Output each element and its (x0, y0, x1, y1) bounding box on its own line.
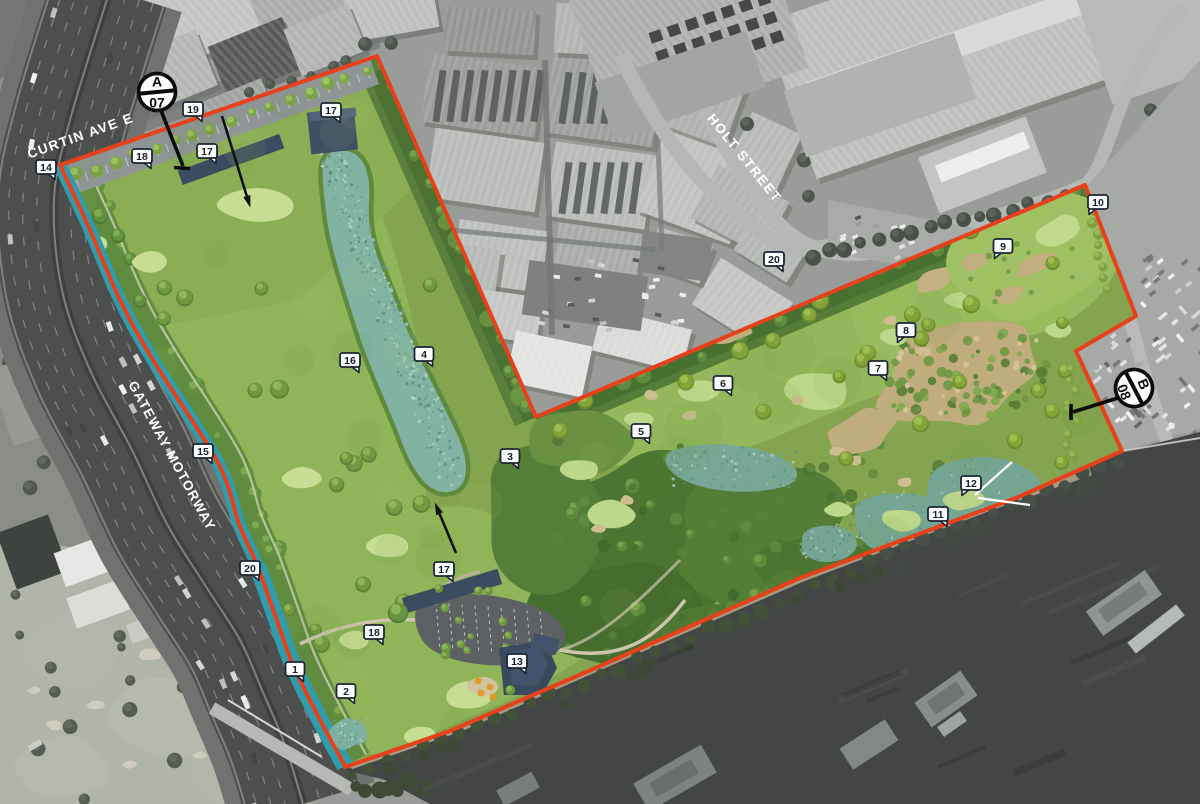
svg-text:18: 18 (136, 151, 148, 163)
svg-text:17: 17 (325, 105, 337, 117)
svg-text:17: 17 (201, 146, 213, 158)
svg-text:18: 18 (368, 627, 380, 639)
svg-text:07: 07 (149, 95, 165, 111)
svg-text:6: 6 (720, 378, 726, 390)
svg-text:20: 20 (768, 254, 780, 266)
svg-text:17: 17 (438, 564, 450, 576)
svg-text:14: 14 (40, 162, 52, 174)
svg-text:A: A (152, 74, 162, 90)
svg-text:9: 9 (1000, 241, 1006, 253)
svg-text:2: 2 (343, 686, 349, 698)
svg-text:7: 7 (875, 363, 881, 375)
svg-text:3: 3 (507, 451, 513, 463)
svg-text:10: 10 (1092, 197, 1104, 209)
svg-text:15: 15 (197, 446, 209, 458)
svg-text:16: 16 (344, 355, 356, 367)
svg-text:5: 5 (638, 426, 644, 438)
svg-text:13: 13 (511, 656, 523, 668)
svg-text:8: 8 (903, 325, 909, 337)
svg-text:4: 4 (421, 349, 427, 361)
svg-text:1: 1 (292, 664, 298, 676)
svg-text:19: 19 (187, 104, 199, 116)
svg-text:12: 12 (965, 478, 977, 490)
svg-text:11: 11 (932, 509, 943, 521)
svg-text:20: 20 (244, 563, 256, 575)
